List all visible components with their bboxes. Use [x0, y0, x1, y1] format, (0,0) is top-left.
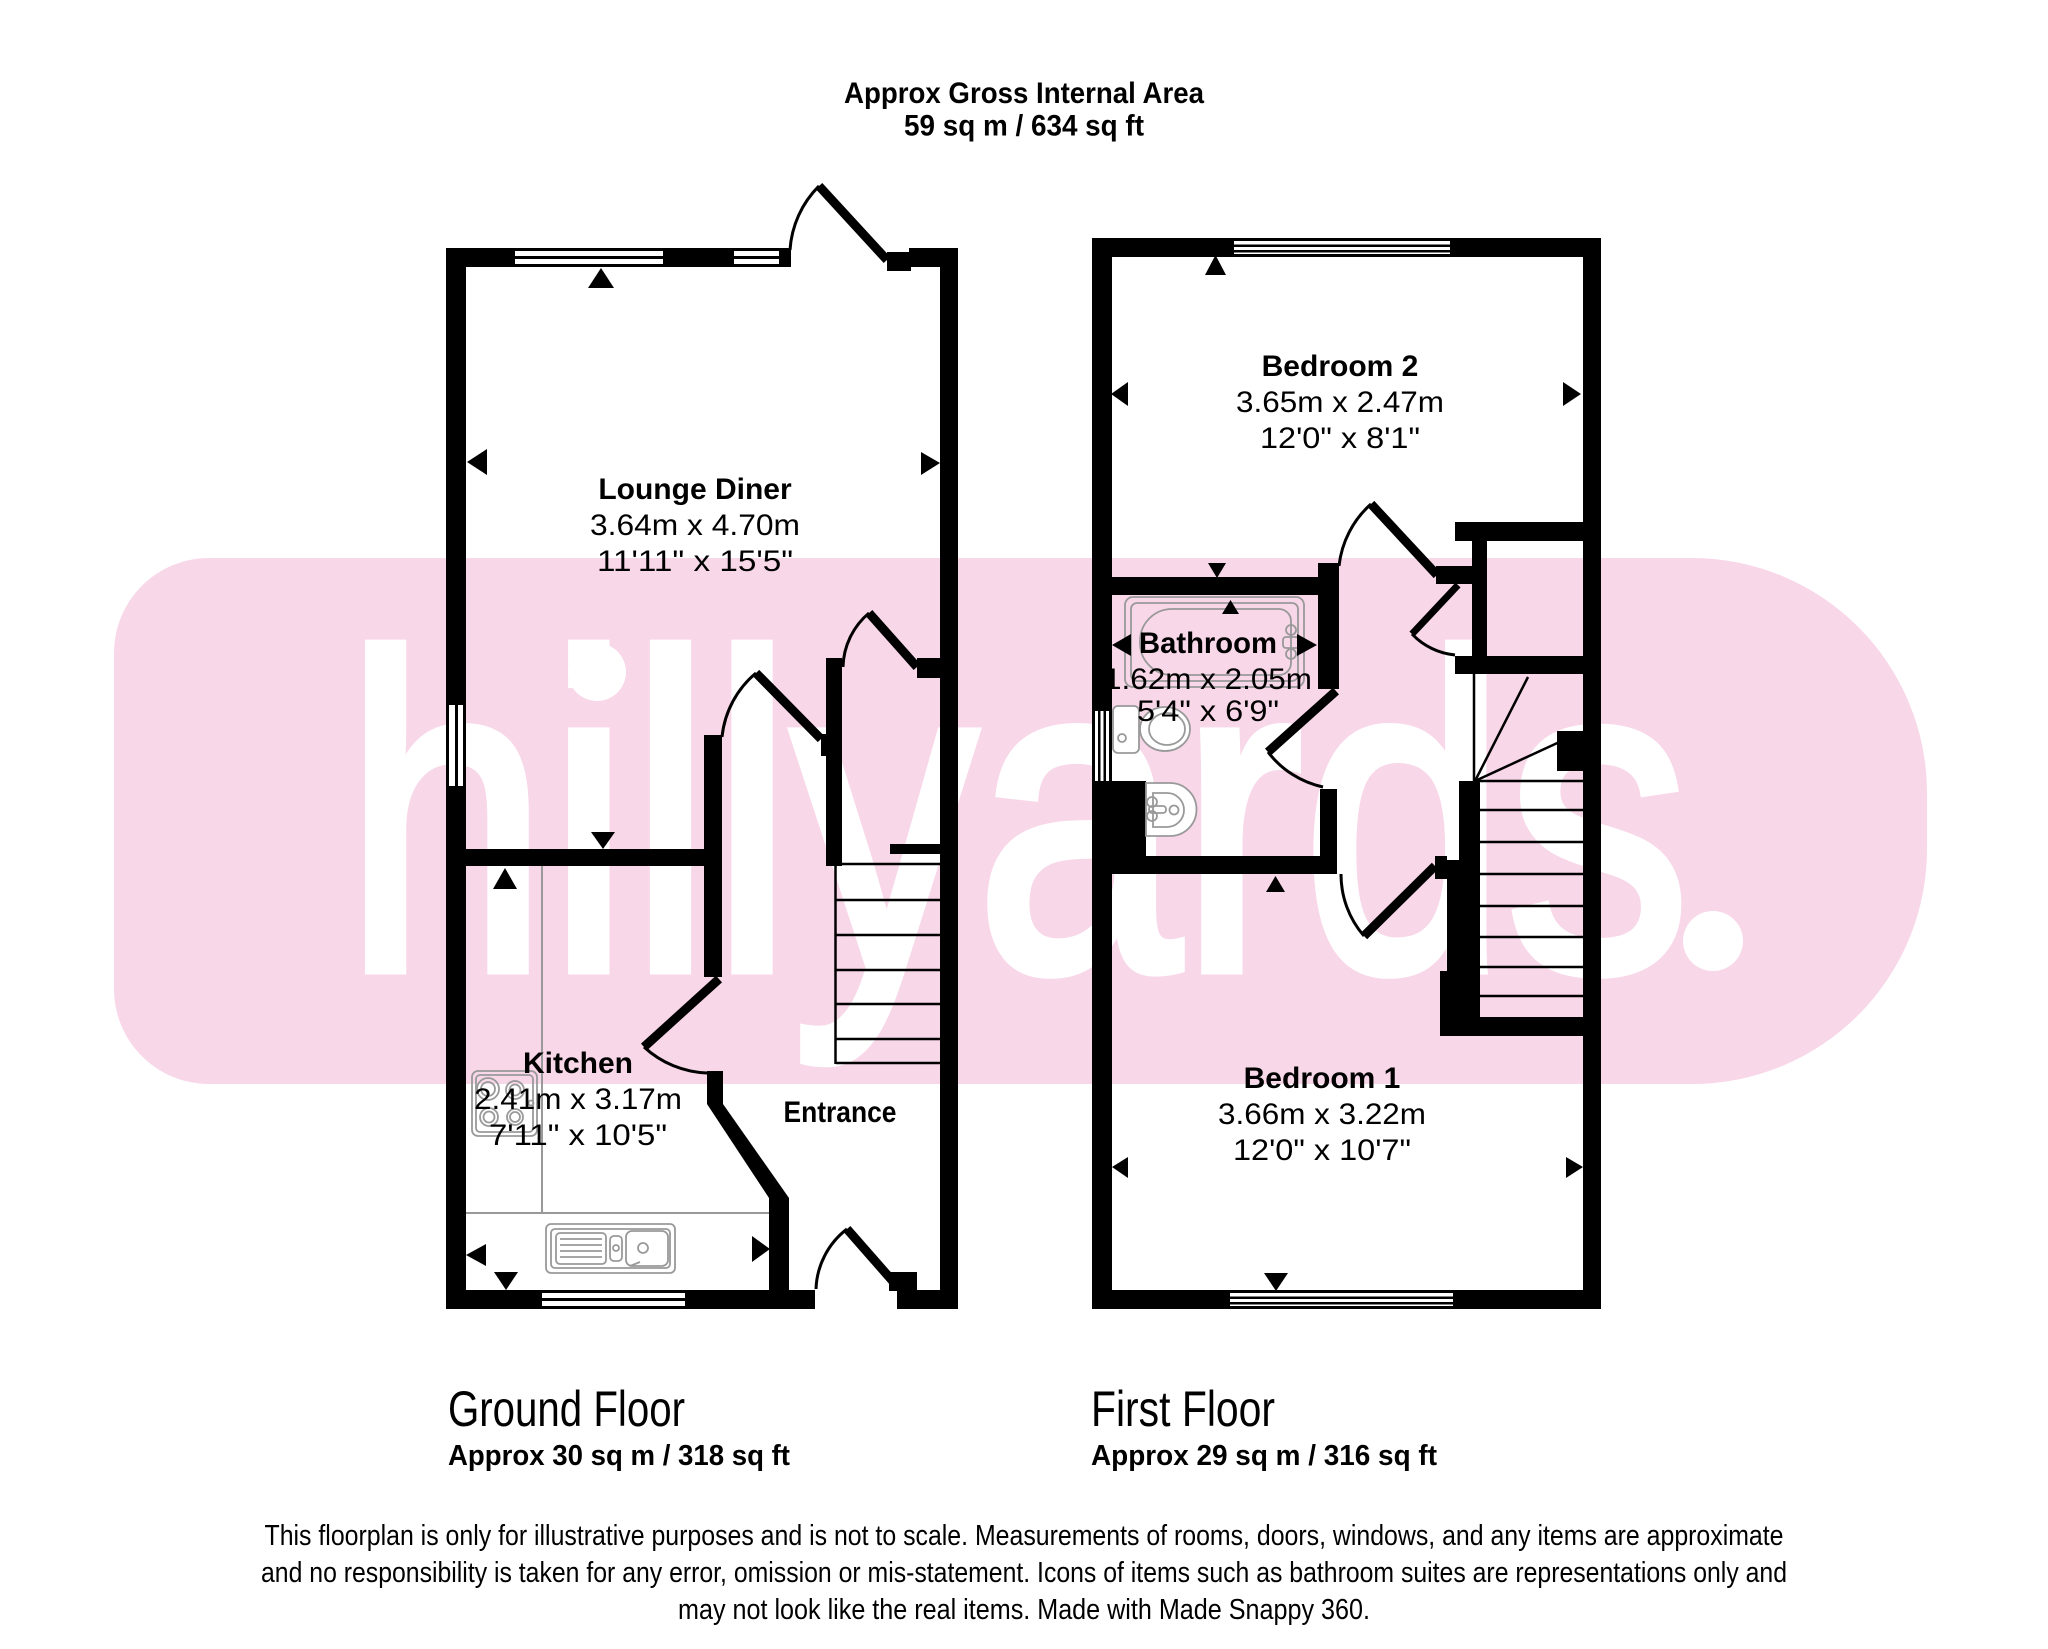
svg-text:7'11" x 10'5": 7'11" x 10'5" [489, 1119, 667, 1152]
svg-text:Approx 30 sq m / 318 sq ft: Approx 30 sq m / 318 sq ft [448, 1440, 790, 1472]
svg-text:Entrance: Entrance [784, 1096, 897, 1129]
svg-text:may not look like the real ite: may not look like the real items. Made w… [678, 1594, 1370, 1626]
svg-text:3.65m x 2.47m: 3.65m x 2.47m [1236, 386, 1444, 419]
svg-text:2.41m x 3.17m: 2.41m x 3.17m [474, 1083, 682, 1116]
svg-text:Bedroom 1: Bedroom 1 [1244, 1062, 1401, 1095]
svg-text:Bathroom: Bathroom [1139, 627, 1277, 660]
svg-text:12'0" x 10'7": 12'0" x 10'7" [1233, 1134, 1411, 1167]
svg-text:5'4" x 6'9": 5'4" x 6'9" [1137, 695, 1279, 728]
svg-text:First Floor: First Floor [1091, 1381, 1275, 1437]
svg-text:1.62m x 2.05m: 1.62m x 2.05m [1104, 663, 1312, 696]
svg-text:and no responsibility is taken: and no responsibility is taken for any e… [261, 1557, 1787, 1589]
svg-text:3.64m x 4.70m: 3.64m x 4.70m [590, 509, 800, 542]
svg-text:Lounge Diner: Lounge Diner [598, 473, 792, 506]
svg-text:3.66m x 3.22m: 3.66m x 3.22m [1218, 1098, 1426, 1131]
svg-text:hillyards: hillyards [344, 565, 1690, 1067]
svg-text:Approx Gross Internal Area: Approx Gross Internal Area [844, 77, 1204, 110]
svg-text:Ground Floor: Ground Floor [448, 1381, 685, 1437]
svg-text:Approx 29 sq m / 316 sq ft: Approx 29 sq m / 316 sq ft [1091, 1440, 1437, 1472]
svg-text:12'0" x 8'1": 12'0" x 8'1" [1260, 422, 1420, 455]
svg-text:Bedroom 2: Bedroom 2 [1262, 350, 1419, 383]
svg-text:This floorplan is only for ill: This floorplan is only for illustrative … [265, 1520, 1784, 1552]
svg-text:59 sq m / 634 sq ft: 59 sq m / 634 sq ft [904, 110, 1144, 143]
svg-text:11'11" x 15'5": 11'11" x 15'5" [597, 545, 793, 578]
svg-text:Kitchen: Kitchen [523, 1047, 633, 1080]
